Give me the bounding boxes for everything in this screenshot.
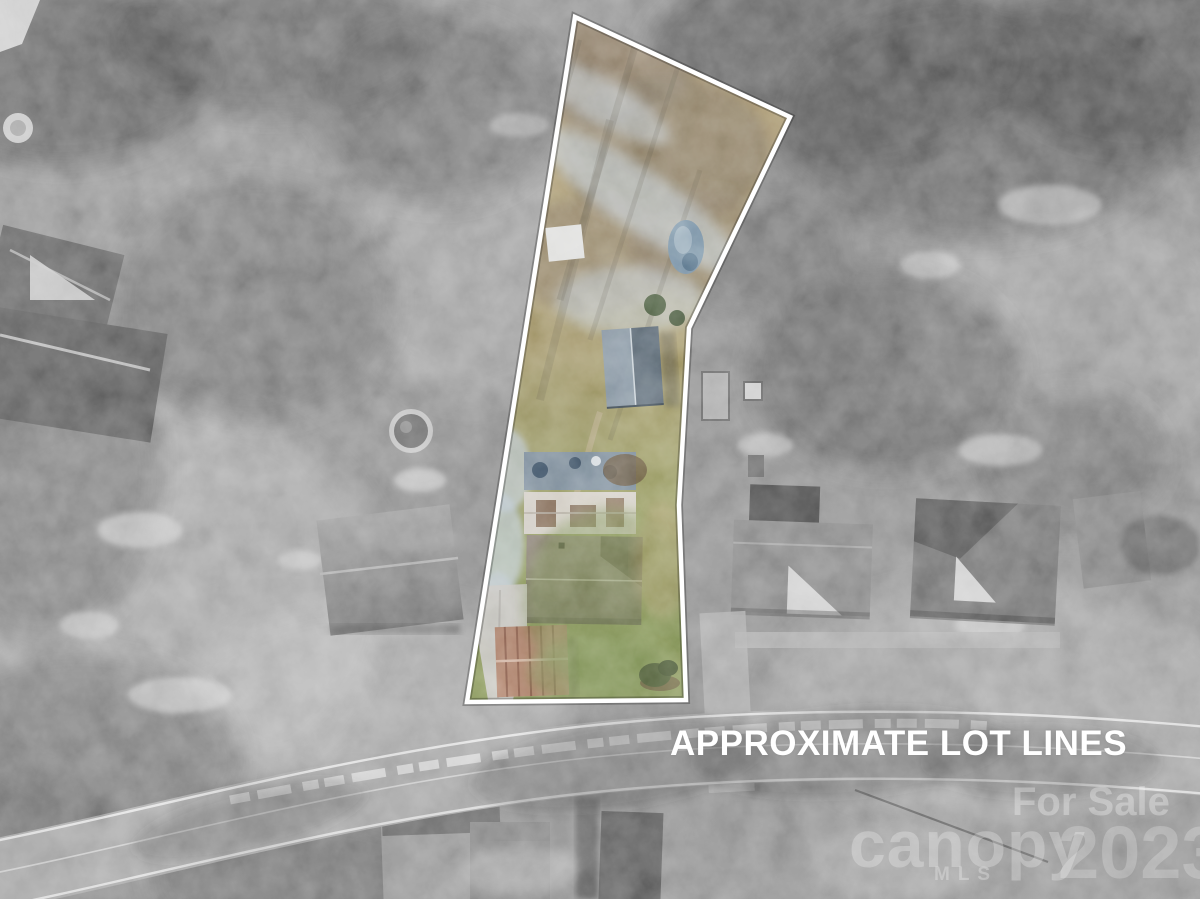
watermark-year: 2023 [1058,810,1200,895]
watermark-brand-mls: MLS [934,864,998,886]
aerial-lot-photo: APPROXIMATE LOT LINES For Sale canopy ML… [0,0,1200,899]
approximate-lot-lines-label: APPROXIMATE LOT LINES [670,724,1127,764]
aerial-scene [0,0,1200,899]
mottle-texture [0,0,1200,899]
